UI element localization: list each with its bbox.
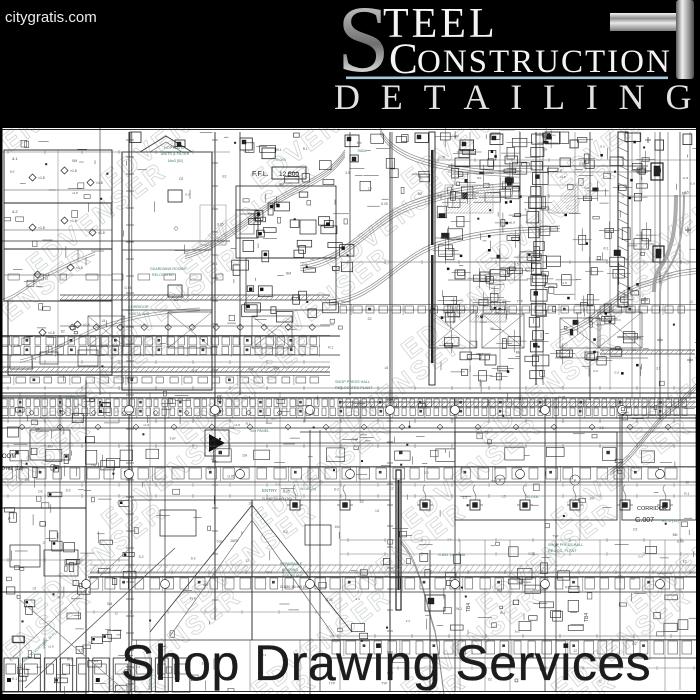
svg-text:W-1: W-1 — [500, 611, 506, 615]
svg-text:x1.8: x1.8 — [509, 221, 515, 225]
svg-text:TYP: TYP — [517, 300, 523, 304]
svg-text:W-1: W-1 — [73, 412, 79, 416]
svg-text:BM: BM — [454, 135, 459, 139]
svg-text:×1.8: ×1.8 — [96, 181, 103, 185]
svg-text:S-2: S-2 — [66, 489, 71, 493]
svg-text:2.4: 2.4 — [115, 410, 120, 414]
svg-text:RELOCATED: RELOCATED — [152, 273, 174, 277]
svg-text:G.0: G.0 — [614, 371, 619, 375]
svg-text:x1.8: x1.8 — [72, 191, 78, 195]
svg-text:G.0: G.0 — [593, 369, 598, 373]
svg-text:S-2: S-2 — [191, 556, 196, 560]
svg-text:W-1: W-1 — [456, 607, 462, 611]
svg-text:S-2: S-2 — [192, 368, 197, 372]
svg-text:G.05: G.05 — [510, 167, 517, 171]
svg-text:G.05: G.05 — [677, 540, 684, 544]
svg-text:16m3 [50]: 16m3 [50] — [167, 159, 182, 163]
svg-text:L5: L5 — [376, 509, 380, 513]
svg-text:G.05: G.05 — [381, 202, 388, 206]
svg-text:10x: 10x — [171, 145, 177, 149]
svg-text:ASS./PLANT: ASS./PLANT — [282, 574, 304, 578]
svg-text:10x: 10x — [589, 497, 595, 501]
svg-text:TB4: TB4 — [466, 603, 472, 612]
svg-text:G.05: G.05 — [326, 598, 333, 602]
svg-text:ONSTRUCTION: ONSTRUCTION — [417, 44, 672, 80]
svg-text:G.0: G.0 — [424, 470, 429, 474]
svg-text:x1.8: x1.8 — [143, 423, 149, 427]
svg-text:BM: BM — [249, 368, 254, 372]
svg-text:RADA: RADA — [358, 149, 368, 153]
svg-text:G.05: G.05 — [217, 223, 224, 227]
svg-text:P: P — [8, 516, 11, 521]
svg-text:D2: D2 — [485, 431, 489, 435]
svg-text:×1.8: ×1.8 — [83, 323, 90, 327]
svg-text:W1: W1 — [94, 659, 99, 663]
svg-text:S-2: S-2 — [283, 530, 288, 534]
svg-text:3.5: 3.5 — [684, 191, 689, 195]
svg-text:G.05: G.05 — [283, 490, 290, 494]
svg-text:W1: W1 — [477, 176, 482, 180]
svg-text:D2: D2 — [61, 329, 65, 333]
svg-text:R.1: R.1 — [604, 247, 609, 251]
svg-text:10x: 10x — [618, 575, 624, 579]
svg-text:TYP: TYP — [557, 352, 563, 356]
svg-text:G.0: G.0 — [600, 144, 605, 148]
svg-text:◇: ◇ — [174, 226, 179, 232]
svg-text:W-1: W-1 — [266, 570, 272, 574]
svg-text:5x2: 5x2 — [515, 629, 520, 633]
svg-text:5x2: 5x2 — [10, 169, 15, 173]
svg-text:R.1: R.1 — [246, 422, 251, 426]
svg-text:5x2: 5x2 — [525, 208, 530, 212]
svg-text:D2: D2 — [368, 317, 372, 321]
svg-text:E2: E2 — [122, 315, 126, 319]
svg-text:BM: BM — [286, 271, 291, 275]
svg-text:x1.8: x1.8 — [440, 235, 446, 239]
svg-text:G.007: G.007 — [635, 517, 654, 524]
svg-text:x1.8: x1.8 — [690, 182, 696, 186]
svg-text:S-2: S-2 — [334, 488, 339, 492]
svg-text:3.5: 3.5 — [345, 171, 350, 175]
svg-text:E2=2 (12): E2=2 (12) — [662, 519, 680, 523]
svg-text:x1.8: x1.8 — [561, 281, 567, 285]
svg-text:S-2: S-2 — [71, 420, 76, 424]
svg-text:JARY: JARY — [230, 539, 240, 543]
svg-text:W-1: W-1 — [212, 262, 218, 266]
svg-text:10x: 10x — [91, 464, 97, 468]
svg-text:G.0XX: G.0XX — [276, 158, 287, 162]
svg-text:R.1: R.1 — [303, 147, 308, 151]
svg-text:2.4: 2.4 — [406, 619, 411, 623]
svg-text:TYP: TYP — [352, 438, 358, 442]
svg-text:10x: 10x — [248, 502, 254, 506]
svg-text:R.1: R.1 — [31, 357, 36, 361]
svg-text:G.0: G.0 — [638, 555, 643, 559]
svg-text:R.1: R.1 — [20, 665, 25, 669]
svg-text:0 m2 (12): 0 m2 (12) — [2, 466, 24, 472]
svg-text:BM: BM — [48, 445, 53, 449]
svg-text:3.5: 3.5 — [599, 426, 604, 430]
svg-text:UNITS & FILTER: UNITS & FILTER — [161, 152, 190, 156]
svg-text:ENTRY: ENTRY — [262, 488, 277, 493]
svg-text:E2: E2 — [683, 560, 687, 564]
svg-text:3.5: 3.5 — [78, 648, 83, 652]
svg-text:DETAILING: DETAILING — [334, 77, 700, 117]
svg-text:3.5: 3.5 — [633, 528, 638, 532]
svg-text:×1.8: ×1.8 — [70, 219, 77, 223]
svg-text:x1.8: x1.8 — [560, 175, 566, 179]
svg-text:G.05: G.05 — [125, 286, 132, 290]
svg-text:G.05: G.05 — [228, 475, 235, 479]
svg-text:S-2: S-2 — [139, 555, 144, 559]
svg-text:10x: 10x — [335, 525, 341, 529]
svg-text:BM: BM — [203, 583, 208, 587]
svg-text:12: 12 — [640, 298, 644, 302]
svg-text:TB4: TB4 — [584, 613, 590, 622]
svg-text:R.1: R.1 — [565, 585, 570, 589]
svg-text:BM: BM — [516, 351, 521, 355]
svg-text:10x PANEL: 10x PANEL — [250, 429, 269, 433]
svg-text:2.4: 2.4 — [356, 597, 361, 601]
svg-text:G.05: G.05 — [438, 156, 445, 160]
svg-text:G.0: G.0 — [185, 193, 190, 197]
svg-text:W-1: W-1 — [276, 148, 282, 152]
svg-text:G.05: G.05 — [579, 162, 586, 166]
svg-text:12: 12 — [42, 541, 46, 545]
svg-text:BM: BM — [274, 367, 279, 371]
svg-text:x1.8: x1.8 — [48, 645, 54, 649]
svg-text:L5: L5 — [615, 273, 619, 277]
svg-text:E2: E2 — [360, 500, 364, 504]
svg-text:×1.8: ×1.8 — [48, 331, 55, 335]
svg-text:R.1: R.1 — [328, 346, 333, 350]
svg-text:E2: E2 — [390, 487, 394, 491]
svg-text:W1: W1 — [638, 337, 643, 341]
svg-text:4.1: 4.1 — [12, 156, 18, 161]
svg-text:R.1: R.1 — [684, 492, 689, 496]
svg-text:SHOP PRESS HALL: SHOP PRESS HALL — [335, 380, 370, 384]
svg-text:G.01A: G.01A — [527, 494, 539, 499]
svg-text:×1.8: ×1.8 — [38, 176, 45, 180]
svg-text:12: 12 — [554, 543, 558, 547]
svg-text:D2: D2 — [418, 192, 422, 196]
svg-text:12: 12 — [689, 300, 693, 304]
svg-text:×1.8: ×1.8 — [70, 169, 77, 173]
svg-text:R.1: R.1 — [12, 677, 17, 681]
svg-text:×1.8: ×1.8 — [76, 266, 83, 270]
svg-text:x1.8: x1.8 — [683, 176, 689, 180]
svg-text:3.5: 3.5 — [484, 298, 489, 302]
svg-text:5x2: 5x2 — [77, 402, 82, 406]
svg-text:2.4: 2.4 — [447, 537, 452, 541]
svg-text:12: 12 — [517, 232, 521, 236]
svg-text:G.0: G.0 — [271, 417, 276, 421]
svg-text:BM: BM — [72, 159, 77, 163]
svg-text:G.007A ½=2: G.007A ½=2 — [128, 312, 149, 316]
svg-text:TYP: TYP — [190, 597, 196, 601]
svg-text:TYP: TYP — [216, 540, 222, 544]
svg-text:W-1: W-1 — [492, 480, 498, 484]
svg-text:G.690 16 m3 (16): G.690 16 m3 (16) — [262, 497, 292, 501]
svg-text:CORRIDOR: CORRIDOR — [128, 305, 149, 309]
svg-text:2.4: 2.4 — [368, 187, 373, 191]
svg-text:R.1: R.1 — [478, 352, 483, 356]
svg-text:TYP: TYP — [552, 534, 558, 538]
svg-text:G.05: G.05 — [558, 396, 565, 400]
svg-text:R.1: R.1 — [10, 344, 15, 348]
svg-text:OOM: OOM — [2, 454, 16, 460]
svg-text:BM: BM — [673, 533, 678, 537]
svg-text:5x2: 5x2 — [174, 298, 179, 302]
svg-text:G.0: G.0 — [639, 293, 644, 297]
svg-text:RE-LOC. PLANT: RE-LOC. PLANT — [548, 549, 577, 553]
svg-text:W-1: W-1 — [57, 596, 63, 600]
svg-text:W.04 (2x): W.04 (2x) — [300, 487, 317, 491]
svg-text:3.5: 3.5 — [656, 366, 661, 370]
svg-text:W-1: W-1 — [243, 150, 249, 154]
svg-text:12: 12 — [245, 559, 249, 563]
svg-text:L5: L5 — [212, 205, 216, 209]
svg-text:12: 12 — [45, 276, 49, 280]
svg-text:E2: E2 — [223, 174, 227, 178]
svg-text:TYP: TYP — [576, 311, 582, 315]
svg-text:12: 12 — [686, 481, 690, 485]
svg-text:4.2: 4.2 — [12, 209, 18, 214]
svg-text:12: 12 — [208, 467, 212, 471]
svg-text:G.0: G.0 — [631, 348, 636, 352]
svg-text:3.5: 3.5 — [514, 263, 519, 267]
svg-text:3.5: 3.5 — [517, 578, 522, 582]
svg-text:L5: L5 — [102, 319, 106, 323]
svg-text:D2: D2 — [38, 489, 42, 493]
svg-text:BM: BM — [279, 182, 284, 186]
svg-text:F.F.L.: F.F.L. — [252, 171, 269, 178]
svg-text:10x: 10x — [24, 478, 30, 482]
svg-text:10x: 10x — [242, 454, 248, 458]
svg-text:E2: E2 — [210, 297, 214, 301]
svg-text:GUARDIANS ROOMS: GUARDIANS ROOMS — [150, 267, 187, 271]
svg-text:SHOP PRESS HALL: SHOP PRESS HALL — [548, 543, 583, 547]
svg-text:L2 PLANT: L2 PLANT — [60, 395, 78, 399]
svg-text:L5: L5 — [385, 366, 389, 370]
svg-text:W-1: W-1 — [67, 658, 73, 662]
svg-text:×1.8: ×1.8 — [98, 231, 105, 235]
svg-text:BM: BM — [494, 312, 499, 316]
svg-text:L5: L5 — [33, 586, 37, 590]
svg-text:×1.8: ×1.8 — [38, 226, 45, 230]
svg-text:G.0: G.0 — [450, 416, 455, 420]
svg-text:10x: 10x — [356, 141, 362, 145]
svg-text:C: C — [389, 36, 418, 83]
svg-text:D2: D2 — [179, 177, 183, 181]
svg-text:G.854 16x4 T56: G.854 16x4 T56 — [438, 553, 465, 557]
svg-text:TYP: TYP — [169, 437, 175, 441]
svg-text:3.5: 3.5 — [211, 457, 216, 461]
svg-text:L5: L5 — [502, 495, 506, 499]
svg-text:D2: D2 — [310, 257, 314, 261]
svg-text:5x2: 5x2 — [88, 641, 93, 645]
svg-text:x1.8: x1.8 — [234, 423, 240, 427]
svg-text:5x2: 5x2 — [584, 186, 589, 190]
svg-text:10x: 10x — [542, 147, 548, 151]
svg-text:G.05: G.05 — [477, 315, 484, 319]
